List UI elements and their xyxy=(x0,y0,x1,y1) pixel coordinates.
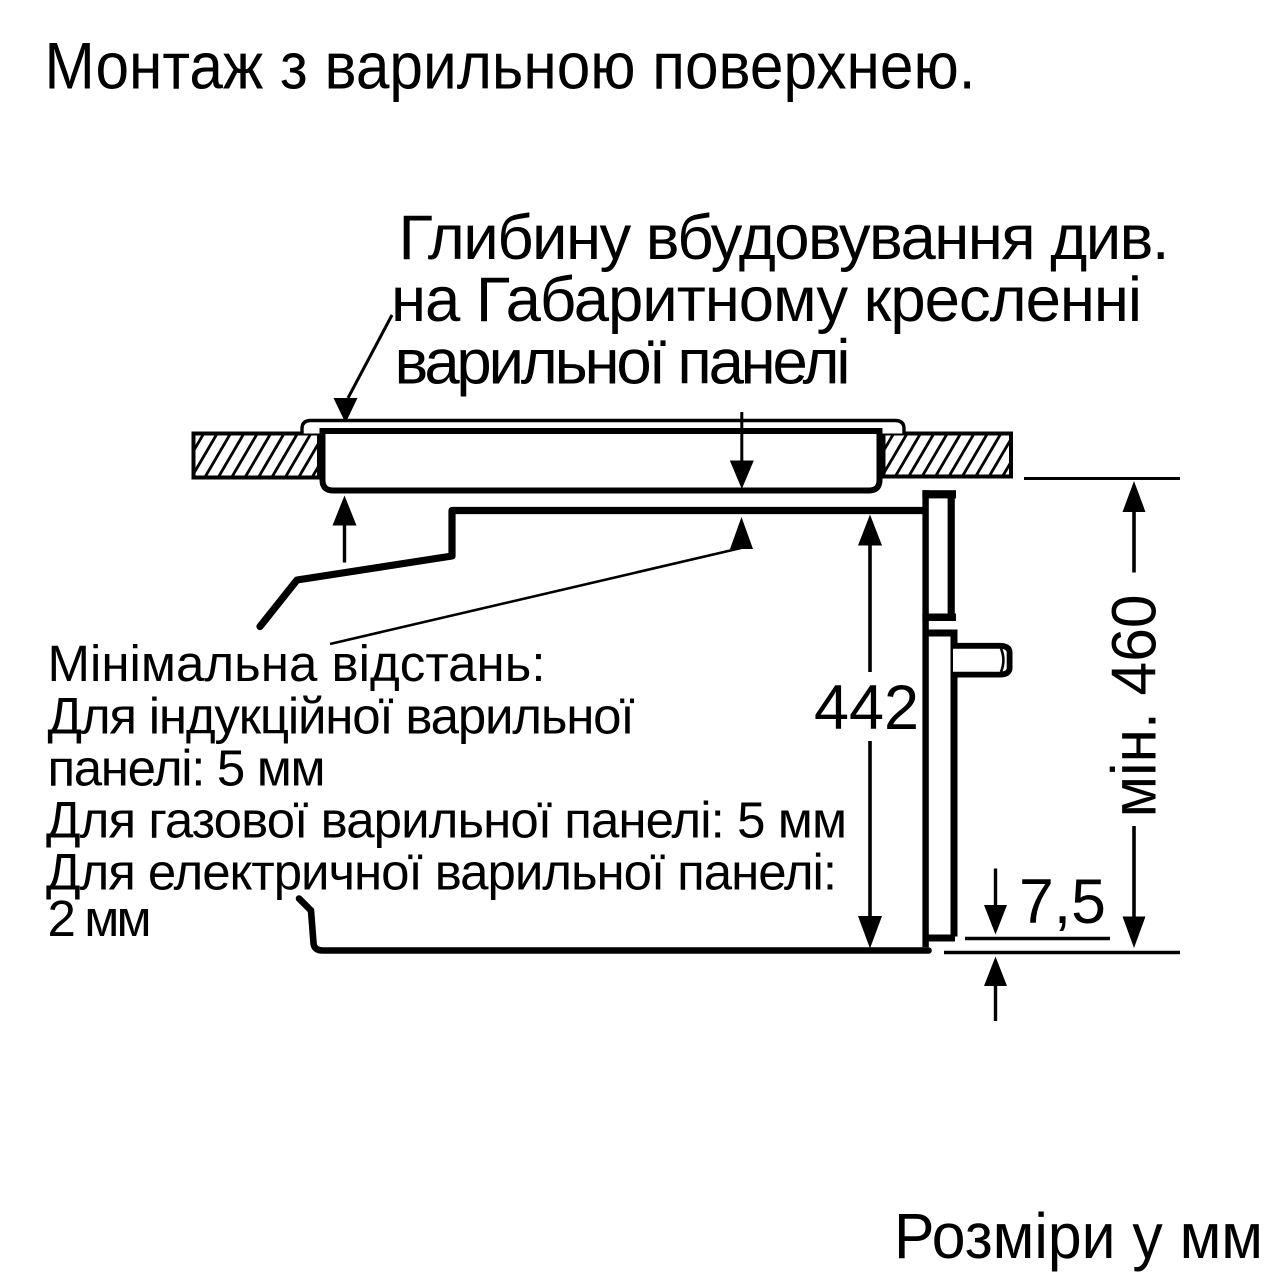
svg-text:Мінімальна відстань:: Мінімальна відстань: xyxy=(48,635,546,692)
svg-text:Монтаж з варильною поверхнею.: Монтаж з варильною поверхнею. xyxy=(45,29,976,103)
svg-text:мін. 460: мін. 460 xyxy=(1100,595,1170,818)
svg-text:7,5: 7,5 xyxy=(1019,867,1106,937)
svg-text:2 мм: 2 мм xyxy=(48,890,152,947)
svg-text:на Габаритному кресленні: на Габаритному кресленні xyxy=(391,265,1142,335)
svg-text:Для індукційної варильної: Для індукційної варильної xyxy=(48,688,635,745)
svg-text:панелі: 5 мм: панелі: 5 мм xyxy=(48,740,326,797)
svg-text:Для електричної варильної пане: Для електричної варильної панелі: xyxy=(46,844,837,901)
svg-text:Глибину вбудовування див.: Глибину вбудовування див. xyxy=(399,203,1170,273)
svg-text:варильної панелі: варильної панелі xyxy=(395,328,851,398)
svg-text:442: 442 xyxy=(814,673,919,743)
svg-text:Для газової варильної панелі:: Для газової варильної панелі: 5 мм xyxy=(46,792,847,849)
svg-text:Розміри у мм: Розміри у мм xyxy=(894,1200,1263,1272)
